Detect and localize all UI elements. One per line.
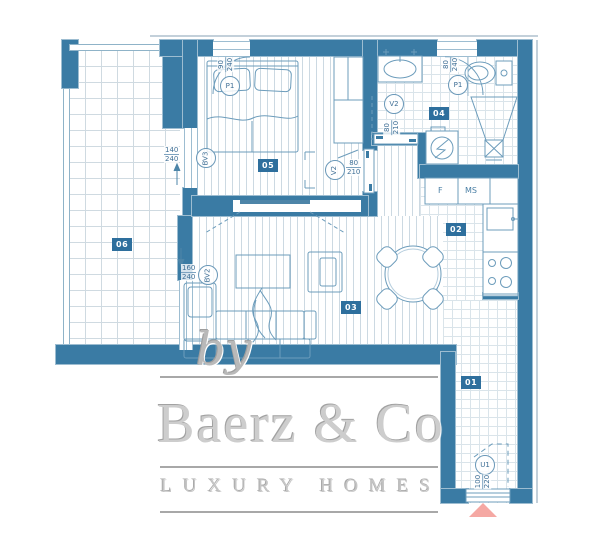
furniture-layer: [0, 0, 600, 537]
dim-bedroom-door: 80210: [346, 159, 361, 176]
dim-bath-door: 80210: [383, 120, 400, 135]
plant: [252, 288, 276, 343]
stove: [483, 252, 518, 294]
bath-sink: [378, 49, 422, 82]
room-label-hall: 01: [461, 376, 481, 389]
sofa: [184, 283, 316, 358]
room-label-kitchen: 02: [446, 223, 466, 236]
tag-entrance-door: U1: [475, 455, 495, 475]
room-label-living: 03: [341, 301, 361, 314]
entry-arrow: [174, 164, 184, 266]
dim-bath-window: 80240: [442, 57, 459, 72]
wardrobe: [334, 57, 363, 143]
room-label-bath: 04: [429, 107, 449, 120]
dim-bedroom-window: 90240: [217, 57, 234, 72]
dim-bedroom-balcony-door: 140240: [164, 146, 179, 163]
tv-view-lines: [205, 212, 345, 233]
tag-bath-window: P1: [448, 75, 468, 95]
tag-bedroom-balcony-door: BV3: [196, 148, 216, 168]
dishwasher-label: MS: [465, 186, 477, 195]
tag-bedroom-door: V2: [325, 160, 345, 180]
tag-living-balcony-door: BV2: [198, 265, 218, 285]
tag-bedroom-window: P1: [220, 76, 240, 96]
entrance-marker: [469, 503, 497, 517]
armchair: [308, 252, 342, 292]
coffee-table: [236, 255, 290, 288]
washing-machine: [426, 127, 458, 164]
dim-entrance-door: 100220: [474, 474, 491, 489]
tag-bath-door: V2: [384, 94, 404, 114]
bed: [207, 61, 298, 152]
floor-plan: 01 02 03 04 05 06 F MS P1 P1 V2 V2 BV3 B…: [0, 0, 600, 537]
toilet: [465, 61, 512, 85]
room-label-bedroom: 05: [258, 159, 278, 172]
dim-living-balcony-door: 160240: [181, 264, 196, 281]
fridge-label: F: [438, 186, 443, 195]
room-label-terrace: 06: [112, 238, 132, 251]
